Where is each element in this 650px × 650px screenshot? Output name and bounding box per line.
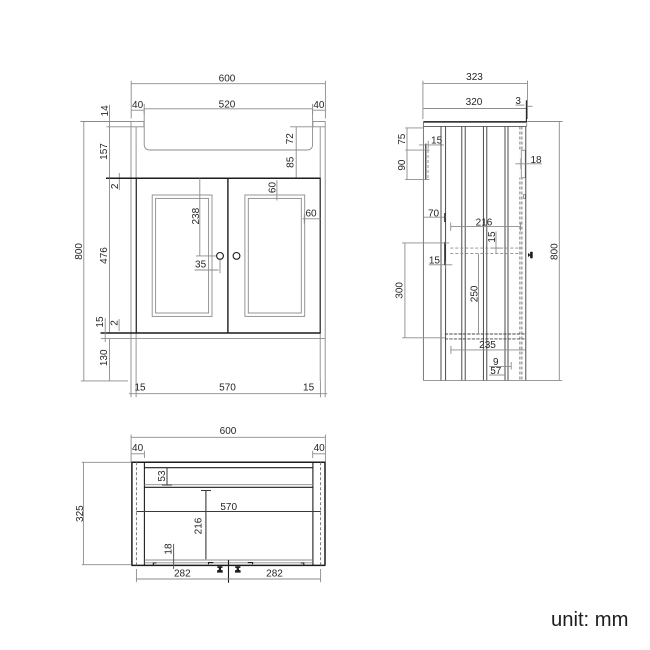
svg-text:53: 53 — [157, 470, 168, 482]
svg-text:40: 40 — [314, 443, 326, 454]
svg-text:476: 476 — [99, 247, 110, 264]
svg-text:40: 40 — [132, 100, 144, 111]
svg-text:157: 157 — [99, 143, 110, 160]
svg-text:3: 3 — [515, 96, 521, 107]
svg-text:40: 40 — [313, 100, 325, 111]
svg-text:70: 70 — [428, 208, 440, 219]
svg-text:520: 520 — [219, 99, 236, 110]
svg-text:60: 60 — [267, 182, 278, 194]
svg-text:90: 90 — [397, 159, 408, 171]
svg-text:600: 600 — [220, 426, 237, 437]
svg-text:35: 35 — [195, 260, 207, 271]
svg-text:14: 14 — [100, 105, 111, 117]
svg-text:15: 15 — [429, 255, 441, 266]
svg-text:72: 72 — [285, 133, 296, 145]
svg-text:18: 18 — [530, 155, 542, 166]
svg-text:unit: mm: unit: mm — [551, 609, 628, 631]
svg-text:216: 216 — [194, 517, 205, 534]
svg-text:600: 600 — [219, 73, 236, 84]
svg-text:282: 282 — [266, 569, 283, 580]
svg-text:216: 216 — [476, 217, 493, 228]
svg-text:800: 800 — [74, 243, 85, 260]
svg-text:40: 40 — [132, 443, 144, 454]
svg-text:323: 323 — [466, 72, 483, 83]
svg-text:300: 300 — [395, 282, 406, 299]
svg-text:15: 15 — [303, 383, 315, 394]
svg-text:800: 800 — [549, 243, 560, 260]
svg-text:2: 2 — [110, 183, 121, 189]
svg-text:235: 235 — [479, 340, 496, 351]
svg-text:282: 282 — [174, 569, 191, 580]
svg-text:18: 18 — [163, 543, 174, 555]
svg-text:60: 60 — [305, 209, 317, 220]
svg-text:57: 57 — [490, 366, 502, 377]
svg-text:15: 15 — [134, 383, 146, 394]
svg-text:2: 2 — [110, 320, 121, 326]
svg-text:75: 75 — [397, 133, 408, 145]
svg-text:250: 250 — [469, 285, 480, 302]
svg-text:570: 570 — [220, 502, 237, 513]
svg-text:325: 325 — [75, 505, 86, 522]
svg-text:15: 15 — [95, 316, 106, 328]
svg-text:130: 130 — [99, 349, 110, 366]
svg-text:320: 320 — [466, 97, 483, 108]
svg-text:238: 238 — [191, 207, 202, 224]
svg-text:570: 570 — [219, 383, 236, 394]
svg-text:15: 15 — [487, 231, 498, 243]
svg-text:85: 85 — [286, 156, 297, 168]
